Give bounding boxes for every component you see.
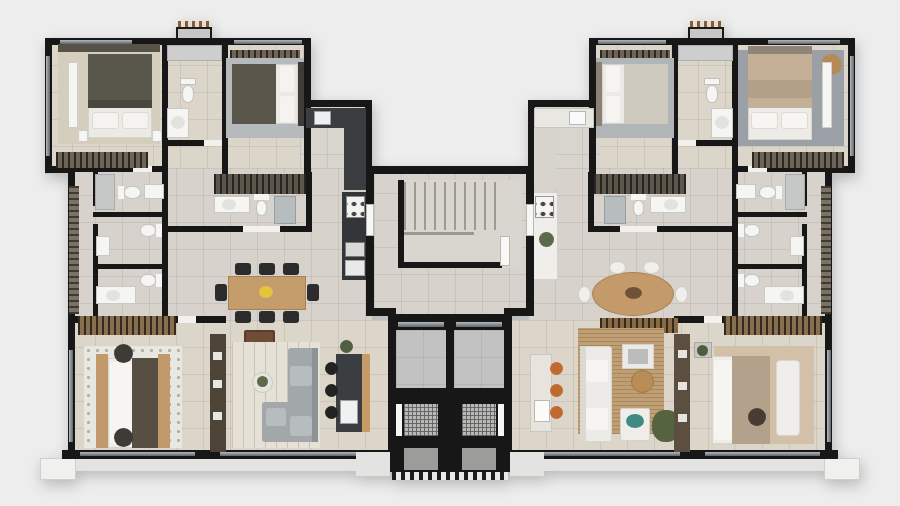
door-gap (620, 226, 657, 232)
corner-step (40, 458, 76, 480)
shower-top-bath (678, 45, 733, 61)
bed-headboard (748, 46, 812, 54)
wall-bathrow-bottom-a (167, 226, 243, 232)
building (0, 0, 900, 506)
wardrobe-bathrow (214, 174, 306, 194)
shaft-hatch (404, 404, 438, 436)
stair-door (500, 236, 510, 266)
bed-pillow (781, 112, 808, 129)
bed-duvet (624, 64, 668, 124)
dining-chair (283, 311, 299, 323)
vent-louver (178, 21, 210, 27)
toilet-tank (738, 274, 744, 287)
bar-stool-orange (550, 384, 563, 397)
kitchen-sink (569, 111, 586, 125)
balcony-slab (490, 458, 856, 471)
wardrobe-master (724, 316, 822, 335)
sofa-back (312, 348, 318, 442)
toilet-tank (738, 224, 744, 237)
basin (171, 116, 185, 129)
window-top-a (768, 40, 840, 44)
bed-duvet (732, 356, 770, 444)
vent-louver (690, 21, 722, 27)
shelf-item (213, 412, 222, 420)
toilet-bowl (744, 224, 760, 237)
cabinet-bathrow (274, 196, 296, 224)
basin (664, 199, 678, 210)
bed-duvet (132, 358, 158, 448)
floor-plan (0, 0, 900, 506)
elevator-cab (454, 330, 504, 388)
shower-bath-a (785, 174, 805, 210)
dining-chair (283, 263, 299, 275)
slab-left (356, 452, 390, 476)
bar-stool-orange (550, 362, 563, 375)
bar-stool (325, 406, 338, 419)
wall-bath-right (162, 146, 168, 320)
entry-door-left (366, 204, 374, 236)
plant (539, 232, 554, 247)
stairwell-wall-bottom (398, 262, 502, 268)
window-top-b (598, 40, 666, 44)
basin (106, 290, 120, 301)
stair-rail (404, 232, 474, 235)
basin (780, 290, 794, 301)
shaft-rail (498, 404, 504, 436)
door-gap (704, 316, 722, 323)
ottoman-top (628, 349, 648, 364)
service-cell (404, 448, 438, 470)
wall-bathrow-bottom-b (280, 226, 312, 232)
dining-chair (235, 263, 251, 275)
elevator-cab (396, 330, 446, 388)
slab-right (510, 452, 544, 476)
toilet-bowl (124, 186, 141, 199)
bar-stool-orange (550, 406, 563, 419)
bed-duvet (232, 64, 276, 124)
oven (345, 242, 365, 257)
elevator-sill (456, 322, 502, 327)
wall-bathrow-bottom-b (588, 226, 620, 232)
bed-duvet-stripe (748, 80, 812, 98)
toilet-bowl (759, 186, 776, 199)
kitchen-counter-side (534, 128, 556, 190)
sofa-cushion (290, 416, 312, 436)
wardrobe-master (78, 316, 176, 335)
wardrobe-bathrow (594, 174, 686, 194)
bed-pillows (714, 360, 732, 440)
fridge (345, 260, 365, 276)
pouf (114, 428, 133, 447)
wall-kitchen-top (304, 100, 372, 107)
sofa-cushion (586, 360, 608, 382)
shelf-item (678, 382, 687, 390)
shower-bath-a (95, 174, 115, 210)
basin (222, 199, 236, 210)
dresser (822, 62, 832, 128)
dining-chair-white (643, 261, 660, 274)
bed-pillow (280, 66, 294, 92)
sofa-cushion (266, 408, 286, 426)
wardrobe-corridor (69, 186, 79, 314)
door-gap (678, 140, 696, 146)
toilet-tank (156, 224, 162, 237)
toilet-bowl (744, 274, 760, 287)
bar-stool (325, 384, 338, 397)
toilet-bowl (140, 274, 156, 287)
bed-duvet-fold (88, 100, 152, 108)
cabinet-bathrow (604, 196, 626, 224)
sofa-cushion (586, 408, 608, 430)
teal-cushion (626, 414, 644, 428)
island-sink (340, 400, 358, 424)
shower-top-bath (167, 45, 222, 61)
service-cell (462, 448, 496, 470)
entry-door-right (526, 204, 534, 236)
wall-master-top-b (196, 316, 226, 323)
wall-bath-bottom (162, 140, 204, 146)
dining-chair (235, 311, 251, 323)
sink-bath-a (144, 184, 164, 199)
window-left-master (827, 350, 831, 442)
door-gap (178, 316, 196, 323)
dining-chair-white (675, 286, 688, 303)
toilet-bowl (706, 85, 718, 103)
plant (257, 376, 268, 387)
kitchen-counter-side (344, 128, 366, 190)
shelf-item (678, 350, 687, 358)
cooktop (535, 196, 554, 218)
pouf (748, 408, 766, 426)
bed-pillow (92, 112, 119, 129)
bed-pillow (122, 112, 149, 129)
wall-bath-mid-2 (93, 264, 167, 269)
basin (715, 116, 729, 129)
wall-bathrow-kitchen (306, 172, 312, 232)
shelf-item (213, 352, 222, 360)
sink-bath-a (736, 184, 756, 199)
hall-left-wall (366, 166, 374, 316)
stair-treads (404, 182, 498, 230)
nightstand (78, 130, 88, 142)
dining-chair (307, 284, 319, 301)
coffee-table-round (631, 370, 654, 393)
sink-bath-b1 (96, 236, 110, 256)
sofa-cushion (290, 366, 312, 386)
dining-chair (259, 311, 275, 323)
window-bottom-a (80, 452, 195, 456)
wall-kitchen-top (528, 100, 596, 107)
island-sink (534, 400, 550, 422)
plant (697, 345, 708, 356)
bedroom1-headshelf (58, 44, 160, 52)
toilet-tank (156, 274, 162, 287)
centerpiece-bowl (625, 287, 642, 299)
dresser (68, 62, 78, 128)
dining-chair (215, 284, 227, 301)
corner-step (824, 458, 860, 480)
hall-right-wall (526, 166, 534, 316)
bar-stool (325, 362, 338, 375)
shelf-item (213, 380, 222, 388)
shaft-rail (396, 404, 402, 436)
window-left-upper (46, 56, 50, 156)
wall-bath-mid-2 (733, 264, 807, 269)
island-plant (340, 340, 353, 353)
toilet-bowl (140, 224, 156, 237)
bed-bench (96, 354, 108, 448)
elevator-sill (398, 322, 444, 327)
bed-pillow (280, 96, 294, 122)
flower-vase (259, 286, 273, 298)
toilet-tank (704, 78, 720, 85)
kitchen-sink (314, 111, 331, 125)
pouf (114, 344, 133, 363)
wall-bath-mid-1 (733, 212, 807, 217)
bed-pillow (606, 66, 620, 92)
cooktop (346, 196, 365, 218)
dining-chair-white (609, 261, 626, 274)
door-gap (243, 226, 280, 232)
window-left-master (69, 350, 73, 442)
wardrobe-bedroom1 (752, 152, 844, 168)
wall-bathrow-bottom-a (657, 226, 733, 232)
wall-kitchen-right (365, 100, 372, 174)
window-bottom-a (705, 452, 820, 456)
shaft-hatch (462, 404, 496, 436)
hall-top-wall (366, 166, 534, 174)
shelf-item (678, 414, 687, 422)
nightstand (152, 130, 162, 142)
bed-pillow (751, 112, 778, 129)
joint-teeth (392, 472, 508, 480)
window-top-b (234, 40, 302, 44)
dining-chair (259, 263, 275, 275)
toilet-tank (180, 78, 196, 85)
chaise-lounge (776, 360, 800, 436)
toilet-bowl (256, 200, 267, 216)
bed-pillow (606, 96, 620, 122)
bed-headboard (596, 62, 602, 126)
bed-headboard (298, 62, 304, 126)
toilet-bowl (182, 85, 194, 103)
sink-bath-b1 (790, 236, 804, 256)
window-left-upper (850, 56, 854, 156)
wardrobe-corridor (821, 186, 831, 314)
toilet-bowl (633, 200, 644, 216)
wall-master-top-b (674, 316, 704, 323)
toilet-tank (776, 186, 782, 199)
bed-bench (158, 354, 170, 448)
island-wood-top (362, 354, 370, 432)
wall-bath-mid-1 (93, 212, 167, 217)
stairwell-wall-left (398, 180, 404, 268)
wardrobe-bedroom1 (56, 152, 148, 168)
door-gap (204, 140, 222, 146)
dining-chair-white (578, 286, 591, 303)
